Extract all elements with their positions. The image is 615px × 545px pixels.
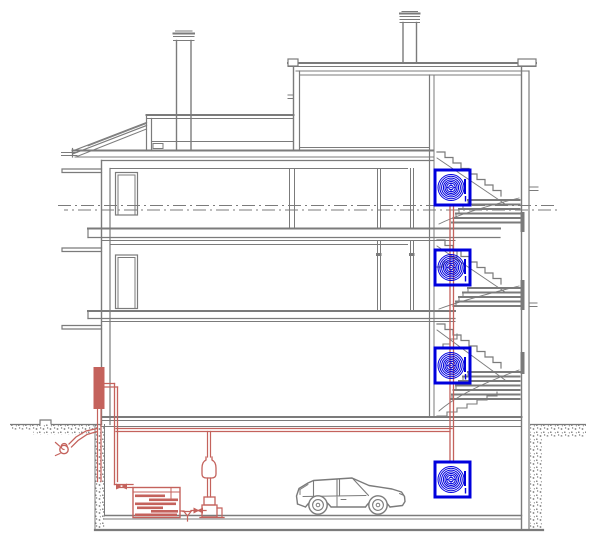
building-section-drawing [0,0,615,545]
cad-canvas [0,0,615,545]
paper-background [0,0,615,545]
